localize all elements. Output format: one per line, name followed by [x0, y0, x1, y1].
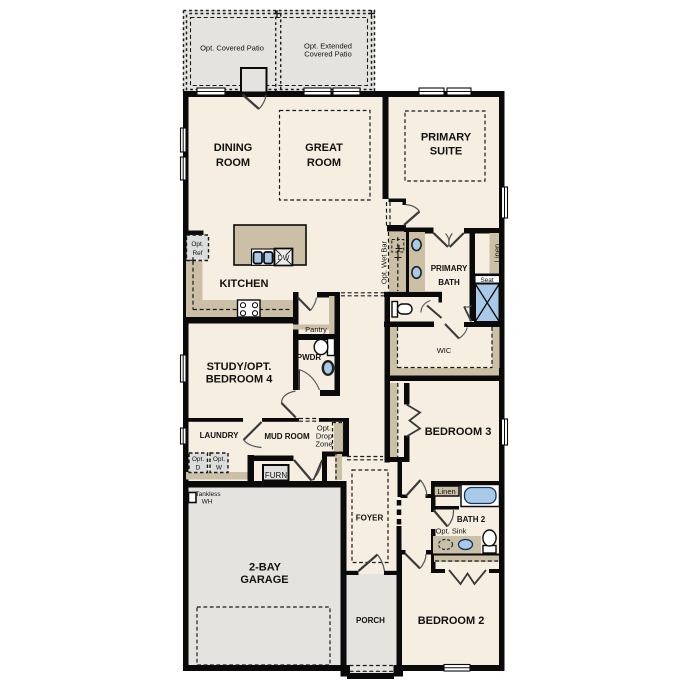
svg-text:STUDY/OPT.: STUDY/OPT. [207, 361, 272, 373]
svg-text:Opt. Covered Patio: Opt. Covered Patio [200, 44, 264, 53]
svg-text:BEDROOM 4: BEDROOM 4 [206, 374, 274, 386]
svg-text:BATH: BATH [438, 278, 460, 287]
svg-text:WIC: WIC [437, 346, 452, 355]
svg-text:BATH 2: BATH 2 [457, 515, 486, 524]
svg-text:Ref: Ref [192, 250, 202, 257]
svg-text:ROOM: ROOM [216, 157, 250, 169]
svg-text:W: W [216, 465, 223, 472]
svg-text:GARAGE: GARAGE [240, 574, 288, 586]
svg-text:Tankless: Tankless [195, 491, 221, 498]
svg-text:Opt.: Opt. [191, 241, 203, 248]
svg-text:DINING: DINING [214, 142, 253, 154]
svg-text:ROOM: ROOM [307, 157, 341, 169]
svg-text:KITCHEN: KITCHEN [220, 278, 269, 290]
svg-text:PRIMARY: PRIMARY [421, 132, 472, 144]
svg-text:Covered Patio: Covered Patio [304, 50, 352, 59]
svg-text:Linen: Linen [437, 487, 455, 496]
svg-text:WH: WH [202, 499, 213, 506]
svg-text:FOYER: FOYER [356, 514, 384, 523]
svg-text:GREAT: GREAT [305, 142, 343, 154]
svg-text:Zone: Zone [315, 440, 332, 449]
svg-text:2-BAY: 2-BAY [249, 562, 282, 574]
svg-text:FURN: FURN [265, 471, 287, 480]
svg-text:Opt.: Opt. [192, 456, 204, 463]
svg-text:D: D [196, 465, 201, 472]
svg-text:Opt. Sink: Opt. Sink [436, 527, 467, 536]
svg-text:Linen: Linen [493, 244, 502, 262]
svg-text:SUITE: SUITE [430, 146, 462, 158]
svg-text:PWDR: PWDR [297, 353, 322, 362]
svg-text:MUD ROOM: MUD ROOM [264, 432, 310, 441]
svg-text:PORCH: PORCH [356, 616, 385, 625]
svg-text:BEDROOM 2: BEDROOM 2 [418, 615, 485, 627]
svg-text:Opt.: Opt. [213, 456, 225, 463]
svg-text:DW: DW [278, 255, 290, 262]
svg-text:Opt. Wet Bar: Opt. Wet Bar [380, 240, 389, 284]
svg-text:LAUNDRY: LAUNDRY [200, 431, 239, 440]
svg-text:BEDROOM 3: BEDROOM 3 [425, 426, 492, 438]
svg-text:PRIMARY: PRIMARY [431, 264, 468, 273]
svg-text:Pantry: Pantry [305, 325, 327, 334]
